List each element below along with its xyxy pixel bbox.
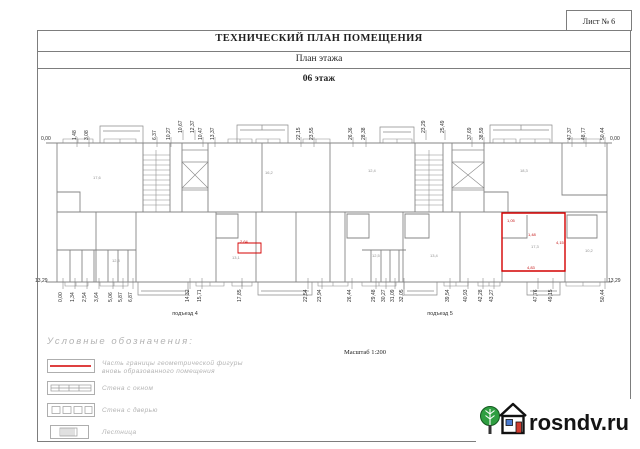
balcony-outlines-bottom <box>138 282 560 295</box>
legend-item-text: Часть границы геометрической фигуры внов… <box>102 360 243 375</box>
legend-item-door: Стена с дверью <box>47 403 95 417</box>
legend-item-boundary: Часть границы геометрической фигуры внов… <box>47 359 95 373</box>
room-area-label: 12,5 <box>372 253 380 258</box>
room-area-label: 13,4 <box>430 253 438 258</box>
entrance-5-label: подъезд 5 <box>415 311 465 317</box>
stairs-legend-symbol <box>47 425 95 439</box>
window-symbols-bottom <box>65 282 600 286</box>
dimension-tick-marks <box>63 130 605 289</box>
door-wall-symbol <box>47 403 95 417</box>
legend: Условные обозначения: Часть границы геом… <box>47 336 317 444</box>
red-dimension-label: 2,64 <box>240 239 248 244</box>
entrance-4-label: подъезд 4 <box>160 311 210 317</box>
room-area-label: 10,2 <box>585 248 593 253</box>
legend-item-text: Лестница <box>102 429 136 437</box>
room-area-label: 13,1 <box>232 255 240 260</box>
window-symbols-top <box>63 139 600 143</box>
highlight-secondary-outline <box>238 243 261 253</box>
room-area-label: 18,3 <box>520 168 528 173</box>
elevator-symbol <box>182 150 484 212</box>
elevation-bottom-left: 13,29 <box>35 278 48 284</box>
red-dimension-label: 1,48 <box>528 232 536 237</box>
red-dimension-label: 4,15 <box>556 240 564 245</box>
legend-title: Условные обозначения: <box>47 336 194 347</box>
elevation-bottom-right: 13,29 <box>608 278 621 284</box>
legend-item-window: Стена с окном <box>47 381 95 395</box>
stairs-symbol <box>143 150 443 212</box>
window-wall-symbol <box>47 381 95 395</box>
room-area-label: 12,4 <box>368 168 376 173</box>
watermark: rosndv.ru <box>476 399 634 446</box>
red-dimension-label: 4,83 <box>527 265 535 270</box>
legend-item-stairs: Лестница <box>47 425 95 439</box>
legend-item-text: Стена с окном <box>102 385 153 393</box>
elevation-top-left: 0,00 <box>41 136 51 142</box>
legend-line: вновь образованного помещения <box>102 368 215 375</box>
legend-line: Часть границы геометрической фигуры <box>102 360 243 367</box>
legend-item-text: Стена с дверью <box>102 407 158 415</box>
room-area-label: 16,2 <box>265 170 273 175</box>
room-area-label: 17,3 <box>531 244 539 249</box>
room-area-label: 12,8 <box>112 258 120 263</box>
elevation-top-right: 0,00 <box>610 136 620 142</box>
technical-plan-page: { "sheet": { "number": "Лист № 6" }, "he… <box>0 0 640 449</box>
red-boundary-symbol <box>47 359 95 373</box>
scale-label: Масштаб 1:200 <box>330 349 400 356</box>
room-area-label: 17,6 <box>93 175 101 180</box>
watermark-text: rosndv.ru <box>529 410 629 435</box>
red-dimension-label: 1,05 <box>507 218 515 223</box>
